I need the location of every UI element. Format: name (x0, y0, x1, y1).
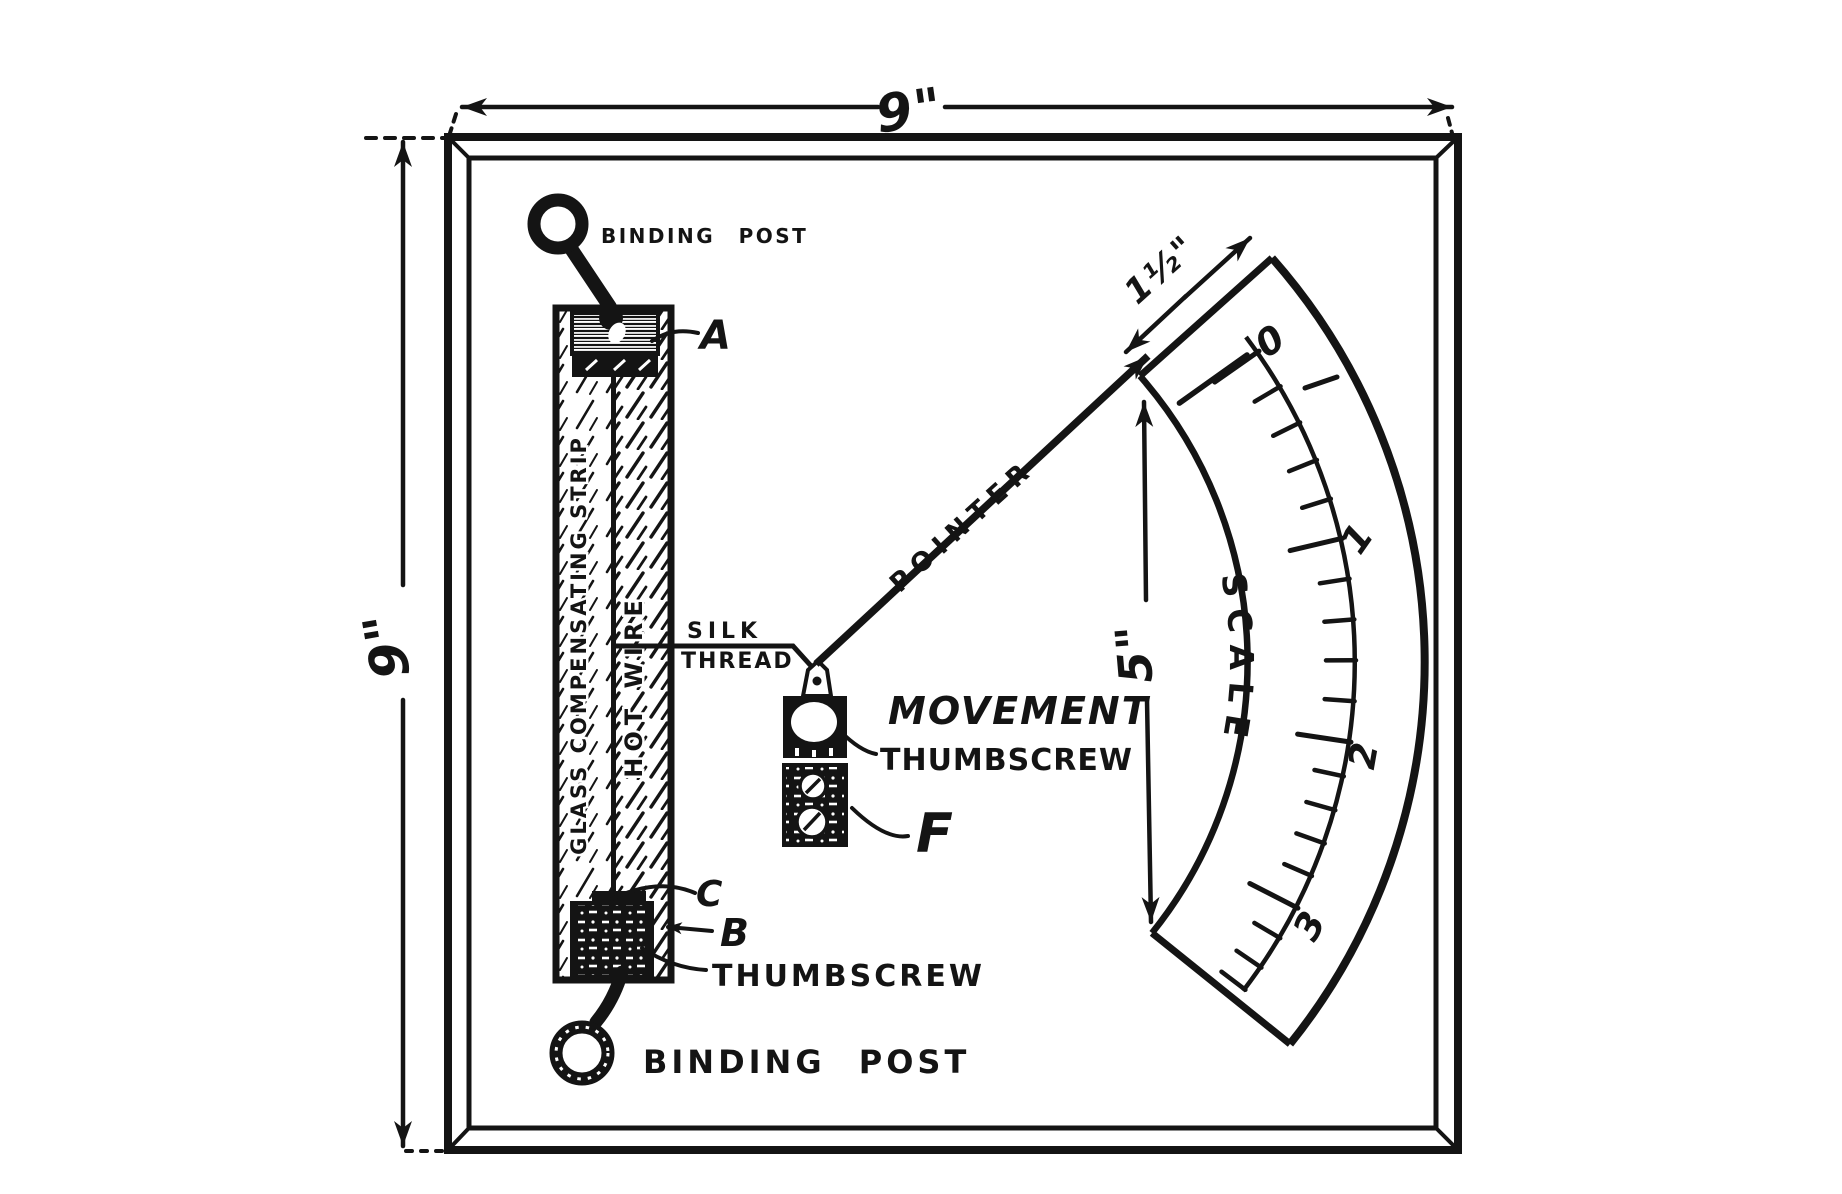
scale-tick (1306, 802, 1335, 810)
scale-tick (1289, 460, 1317, 471)
scale-tick (1315, 770, 1344, 776)
scale-edge-dim-label: 1½" (1117, 227, 1205, 312)
clamp-b (572, 891, 652, 977)
scale-tick (1320, 579, 1350, 584)
post-ring (534, 200, 582, 248)
leader-f (852, 808, 908, 836)
label-a: A (697, 313, 733, 359)
clamp-a (572, 306, 658, 377)
scale-assembly: 0 1 2 3 SCALE (1140, 258, 1425, 1044)
leader-b (668, 927, 712, 931)
silk-label-line2: THREAD (681, 649, 794, 674)
pointer-label: POINTER (884, 453, 1041, 598)
movement-label: MOVEMENT (888, 689, 1151, 733)
scale-tick (1237, 951, 1262, 968)
movement-thumbscrew-label: THUMBSCREW (880, 743, 1133, 778)
scale-tick (1296, 833, 1324, 843)
scale-numeral-3: 3 (1284, 903, 1335, 948)
scale-numeral-0: 0 (1247, 315, 1294, 366)
thumbscrew-bottom-label: THUMBSCREW (712, 959, 985, 994)
scale-tick (1250, 884, 1298, 909)
scale-tick (1290, 538, 1343, 550)
scale-span-dim-line-bottom (1147, 700, 1151, 922)
meter-diagram: 9" 9" 1½" 5" GLASS COMPENSATING STRIP HO… (0, 0, 1842, 1194)
movement-thumbscrew-head (791, 702, 837, 742)
scale-tick (1179, 355, 1247, 403)
binding-post-top-label: BINDING POST (601, 224, 808, 248)
scale-tick (1222, 972, 1246, 990)
scale-tick (1284, 864, 1312, 876)
top-left-extension-dash (450, 114, 456, 133)
left-height-dim-label: 9" (352, 607, 423, 684)
label-f: F (916, 802, 955, 865)
pivot-screw (813, 677, 822, 686)
post-ring (556, 1027, 608, 1079)
binding-post-bottom-label: BINDING POST (643, 1043, 970, 1081)
label-c: C (696, 874, 724, 915)
top-width-dim-label: 9" (872, 77, 947, 146)
scale-span-dim-line-top (1144, 402, 1146, 600)
scale-stray-mark (1305, 377, 1337, 388)
scale-tick (1302, 499, 1331, 508)
scale-tick (1324, 619, 1354, 621)
scale-numeral-2: 2 (1340, 737, 1387, 772)
scale-tick (1273, 423, 1300, 436)
strip-assembly: GLASS COMPENSATING STRIP HOT WIRE (534, 200, 671, 1079)
binding-post-bottom (556, 972, 622, 1079)
diagram-page: 9" 9" 1½" 5" GLASS COMPENSATING STRIP HO… (0, 0, 1842, 1194)
scale-span-dim-label: 5" (1105, 621, 1164, 685)
scale-tick (1215, 351, 1259, 382)
top-right-extension-dash (1448, 118, 1452, 133)
text-labels: BINDING POST BINDING POST A C B THUMBSCR… (601, 224, 1151, 1081)
scale-tick (1325, 699, 1355, 701)
scale-tick (1255, 386, 1281, 401)
scale-name-label: SCALE (1213, 570, 1261, 751)
scale-ticks (1179, 351, 1356, 990)
binding-post-top (534, 200, 610, 307)
label-b: B (720, 911, 751, 955)
post-stem (570, 247, 610, 307)
glass-strip-label: GLASS COMPENSATING STRIP (567, 435, 591, 855)
hot-wire-label: HOT WIRE (620, 594, 648, 778)
svg-text:SCALE: SCALE (1213, 570, 1261, 751)
silk-label-line1: SILK (687, 619, 762, 644)
scale-tick (1254, 923, 1280, 938)
scale-numeral-1: 1 (1332, 514, 1383, 561)
scale-tick (1298, 734, 1351, 742)
